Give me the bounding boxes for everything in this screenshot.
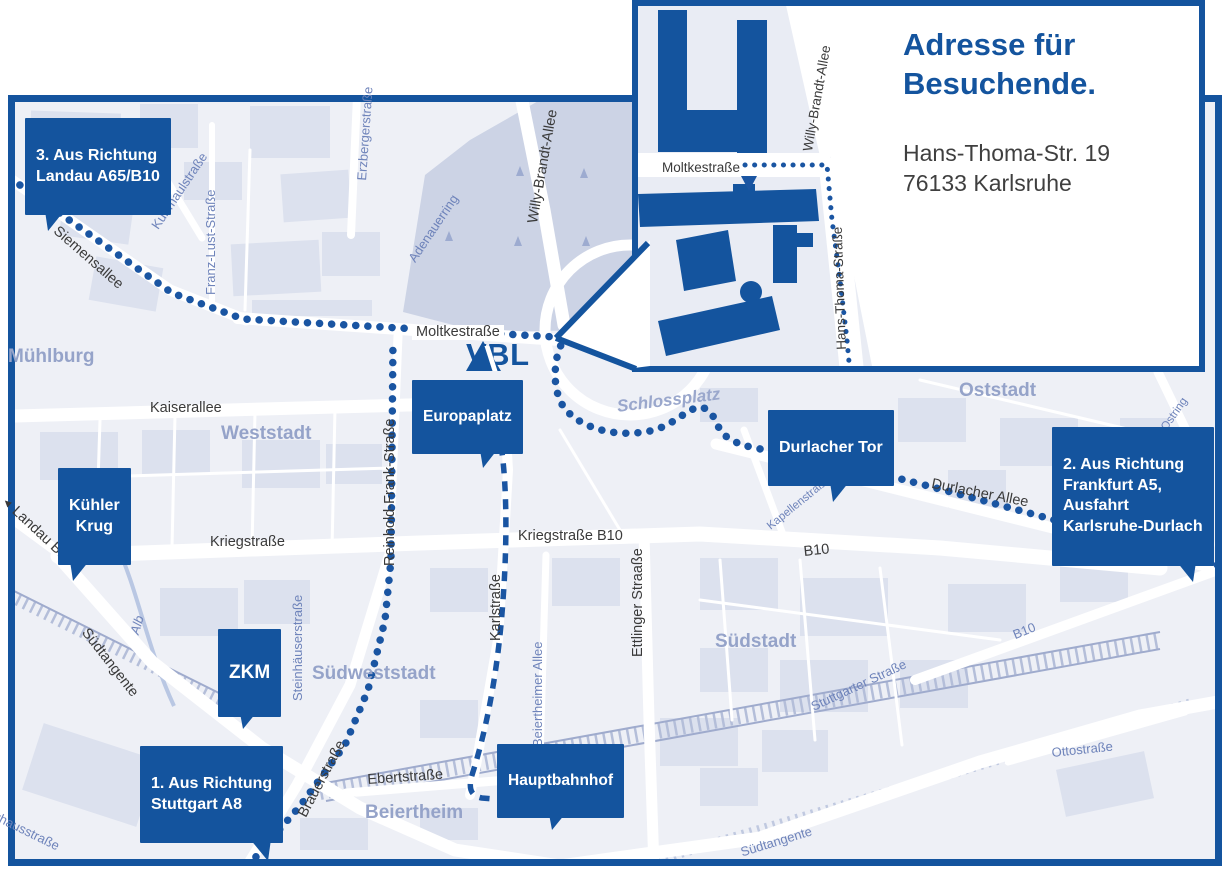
callout-stuttgart: 1. Aus Richtung Stuttgart A8 bbox=[140, 746, 283, 843]
inset-address: Hans-Thoma-Str. 19 76133 Karlsruhe bbox=[903, 139, 1110, 199]
street-label-kaiserallee: Kaiserallee bbox=[150, 401, 222, 416]
district-suedstadt: Südstadt bbox=[715, 632, 796, 652]
vbl-directions-map: Mühlburg Weststadt Oststadt Südstadt Süd… bbox=[0, 0, 1230, 874]
callout-landau-text: 3. Aus Richtung Landau A65/B10 bbox=[36, 147, 160, 185]
callout-europaplatz-tail-icon bbox=[480, 450, 497, 471]
callout-zkm-tail-icon bbox=[240, 713, 256, 732]
map-graphics bbox=[0, 0, 1230, 874]
district-oststadt: Oststadt bbox=[959, 381, 1036, 401]
callout-frankfurt-tail-icon bbox=[1177, 562, 1196, 585]
street-label-karlstrasse: Karlstraße bbox=[489, 574, 504, 641]
callout-stuttgart-text: 1. Aus Richtung Stuttgart A8 bbox=[151, 775, 272, 813]
callout-europaplatz: Europaplatz bbox=[412, 380, 523, 454]
callout-europaplatz-text: Europaplatz bbox=[423, 408, 512, 425]
callout-hauptbahnhof-tail-icon bbox=[549, 814, 565, 833]
street-label-kriegstrasse-b10: Kriegstraße B10 bbox=[518, 529, 623, 544]
vbl-logo: VBL bbox=[466, 341, 530, 370]
district-weststadt: Weststadt bbox=[221, 424, 311, 444]
district-beiertheim: Beiertheim bbox=[365, 803, 463, 823]
callout-frankfurt-text: 2. Aus Richtung Frankfurt A5, Ausfahrt K… bbox=[1063, 456, 1203, 535]
callout-zkm: ZKM bbox=[218, 629, 281, 717]
street-label-ettlinger-strasse: Ettlinger Straaße bbox=[631, 548, 646, 657]
district-suedweststadt: Südweststadt bbox=[312, 664, 436, 684]
street-label-b10-mitte: B10 bbox=[803, 542, 830, 560]
callout-landau: 3. Aus Richtung Landau A65/B10 bbox=[25, 118, 171, 215]
callout-landau-tail-icon bbox=[45, 211, 64, 234]
inset-street-label-moltkestrasse: Moltkestraße bbox=[662, 161, 740, 175]
street-label-franz-lust-strasse: Franz-Lust-Straße bbox=[204, 190, 218, 295]
street-label-steinhaeuserstrasse: Steinhäuserstraße bbox=[291, 595, 305, 701]
callout-durlacher-tor-text: Durlacher Tor bbox=[779, 439, 883, 456]
callout-kuehler-krug-tail-icon bbox=[70, 561, 89, 584]
callout-kuehler-krug: Kühler Krug bbox=[58, 468, 131, 565]
callout-hauptbahnhof: Hauptbahnhof bbox=[497, 744, 624, 818]
callout-frankfurt: 2. Aus Richtung Frankfurt A5, Ausfahrt K… bbox=[1052, 427, 1214, 566]
callout-hauptbahnhof-text: Hauptbahnhof bbox=[508, 772, 613, 789]
callout-stuttgart-tail-icon bbox=[250, 839, 271, 864]
street-label-reinhold-frank-strasse: Reinhold-Frank-Straße bbox=[383, 419, 398, 566]
inset-title: Adresse für Besuchende. bbox=[903, 26, 1096, 104]
street-label-beiertheimer-allee: Beiertheimer Allee bbox=[531, 642, 545, 748]
vbl-triangle-icon bbox=[466, 341, 502, 372]
callout-kuehler-krug-text: Kühler Krug bbox=[69, 497, 120, 535]
callout-durlacher-tor-tail-icon bbox=[830, 482, 849, 505]
street-label-kriegstrasse: Kriegstraße bbox=[210, 535, 285, 550]
district-muehlburg: Mühlburg bbox=[8, 347, 95, 367]
callout-durlacher-tor: Durlacher Tor bbox=[768, 410, 894, 486]
callout-zkm-text: ZKM bbox=[229, 662, 270, 683]
